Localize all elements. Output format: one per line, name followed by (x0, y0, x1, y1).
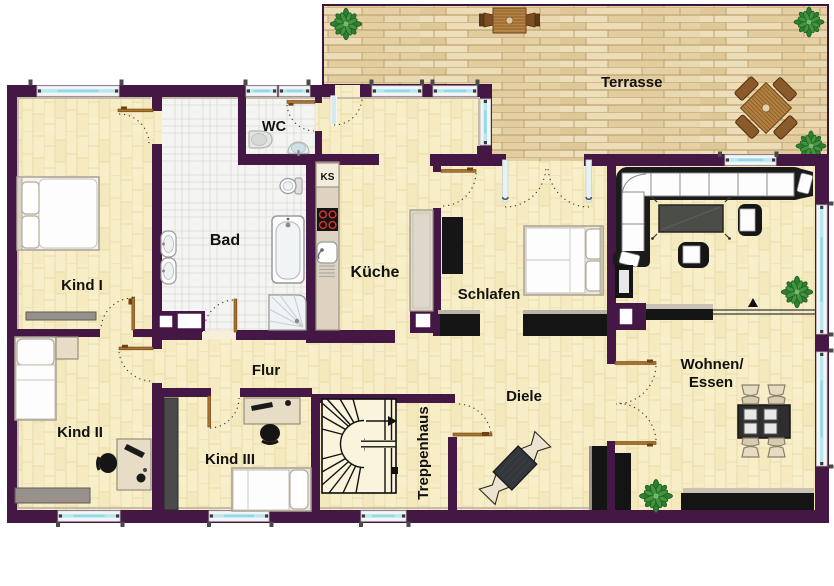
svg-text:Essen: Essen (689, 374, 733, 391)
svg-text:Bad: Bad (210, 232, 240, 249)
svg-text:Terrasse: Terrasse (601, 74, 662, 91)
svg-text:Flur: Flur (252, 362, 280, 379)
svg-text:WC: WC (262, 119, 287, 135)
svg-text:Treppenhaus: Treppenhaus (415, 406, 432, 499)
svg-text:KS: KS (321, 172, 335, 183)
svg-text:Küche: Küche (351, 264, 400, 281)
svg-text:Wohnen/: Wohnen/ (680, 356, 744, 373)
svg-text:Diele: Diele (506, 388, 542, 405)
svg-text:Kind II: Kind II (57, 424, 103, 441)
svg-text:Kind I: Kind I (61, 277, 103, 294)
svg-text:Kind III: Kind III (205, 451, 255, 468)
svg-text:Schlafen: Schlafen (458, 286, 521, 303)
